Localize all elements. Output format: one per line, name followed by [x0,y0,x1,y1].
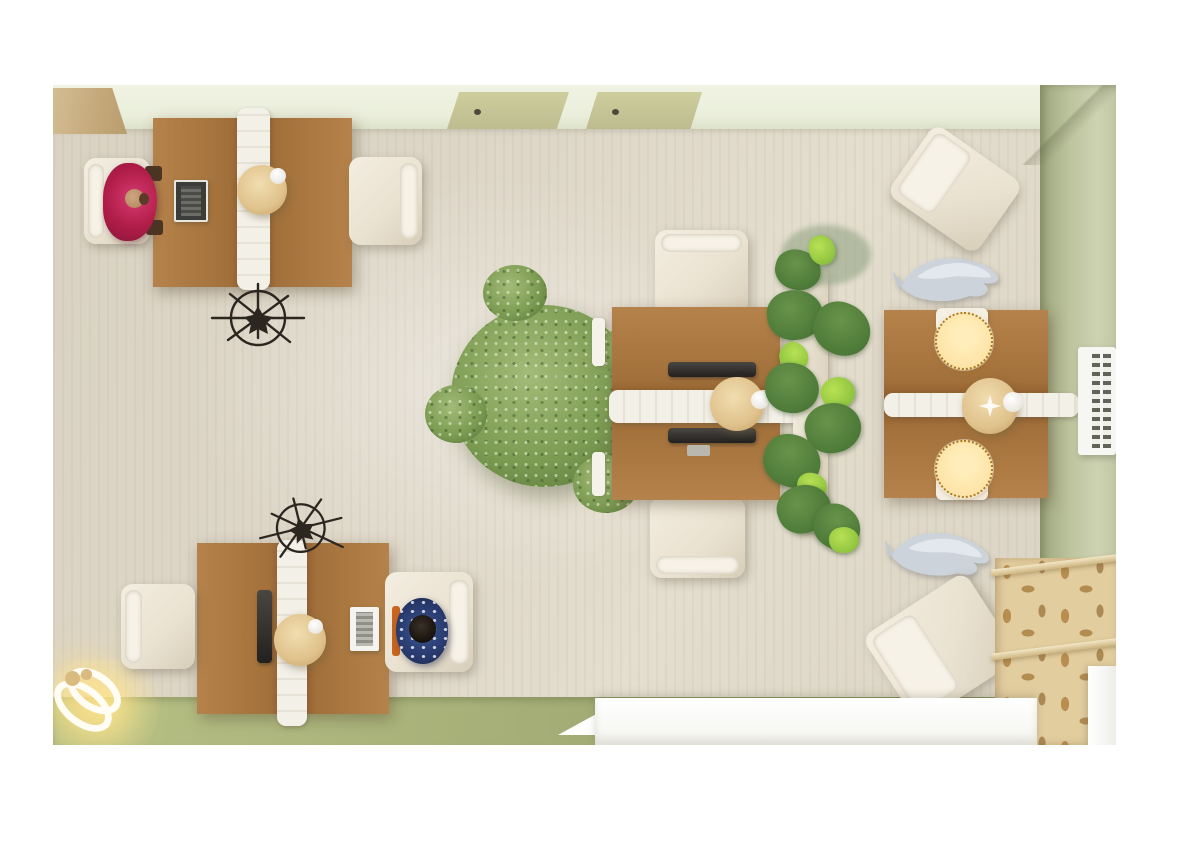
person-head [409,615,436,643]
monitor [257,590,272,663]
fish-sculpture-bottom [881,518,999,589]
laptop [174,180,208,222]
tree-foliage-tuft [483,265,547,321]
reception-counter [595,698,1037,745]
desk-end-screen [592,452,605,496]
office-chair-empty-bottom-left [121,584,195,669]
office-chair-top-right [886,123,1024,255]
door-handle-dot [612,109,619,115]
person-hair [139,193,149,205]
door-handle-dot [474,109,481,115]
lamp-white-ball [270,168,286,184]
office-chair-center-top [655,230,748,315]
laptop-white [350,607,379,651]
partition-block [1088,666,1116,745]
person-in-navy [396,598,448,664]
wall-door-panel-1 [447,92,569,129]
wireframe-fan-sculpture-1 [208,278,308,360]
keyboard [687,445,710,456]
seat-hotspot-top[interactable] [935,312,993,370]
office-render [53,85,1116,745]
lamp-base-knobs [65,671,80,686]
radiator-grille [1092,353,1111,448]
bench-seam [991,634,1116,660]
desk-end-screen [592,318,605,366]
radiator-vent [1078,347,1116,455]
lamp-star-ornament [978,394,1002,418]
tree-foliage-tuft [425,385,487,443]
wall-corner-seam [1013,85,1116,165]
fish-sculpture-top [893,251,1005,307]
glowing-ring-floor-lamp [53,670,118,732]
wall-door-panel-2 [586,92,702,129]
lamp-white-ball [1003,392,1023,412]
seat-hotspot-bottom[interactable] [935,440,993,498]
office-chair-empty-top-left [349,157,422,245]
screenshot-canvas [0,0,1200,848]
monitor [668,362,756,377]
lamp-white-ball [308,619,323,634]
office-chair-center-bottom [650,497,745,578]
